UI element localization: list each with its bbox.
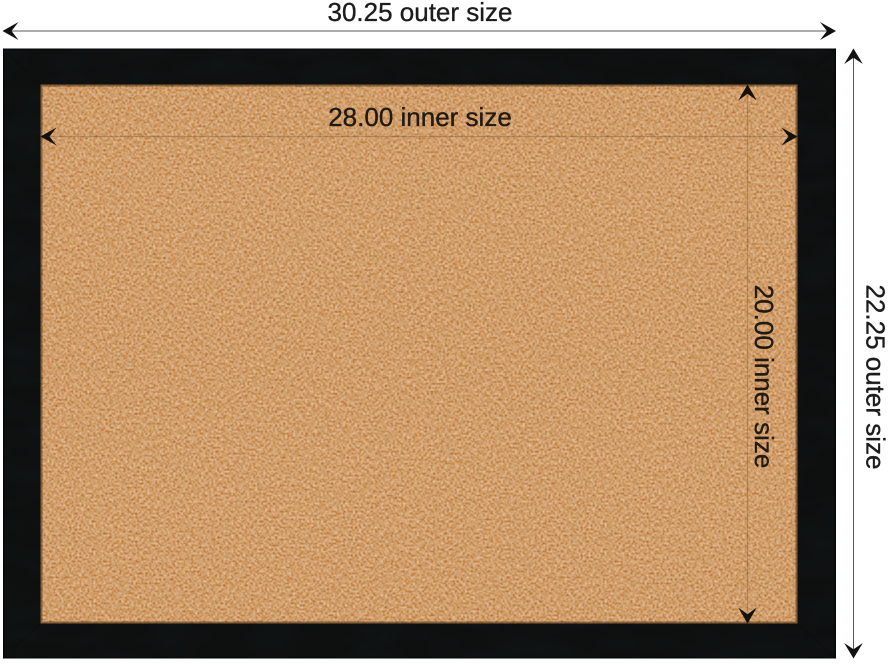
svg-text:30.25 outer size: 30.25 outer size <box>327 0 512 27</box>
svg-text:20.00 inner size: 20.00 inner size <box>749 285 779 469</box>
svg-text:28.00 inner size: 28.00 inner size <box>328 102 512 132</box>
svg-text:22.25 outer size: 22.25 outer size <box>861 284 888 469</box>
